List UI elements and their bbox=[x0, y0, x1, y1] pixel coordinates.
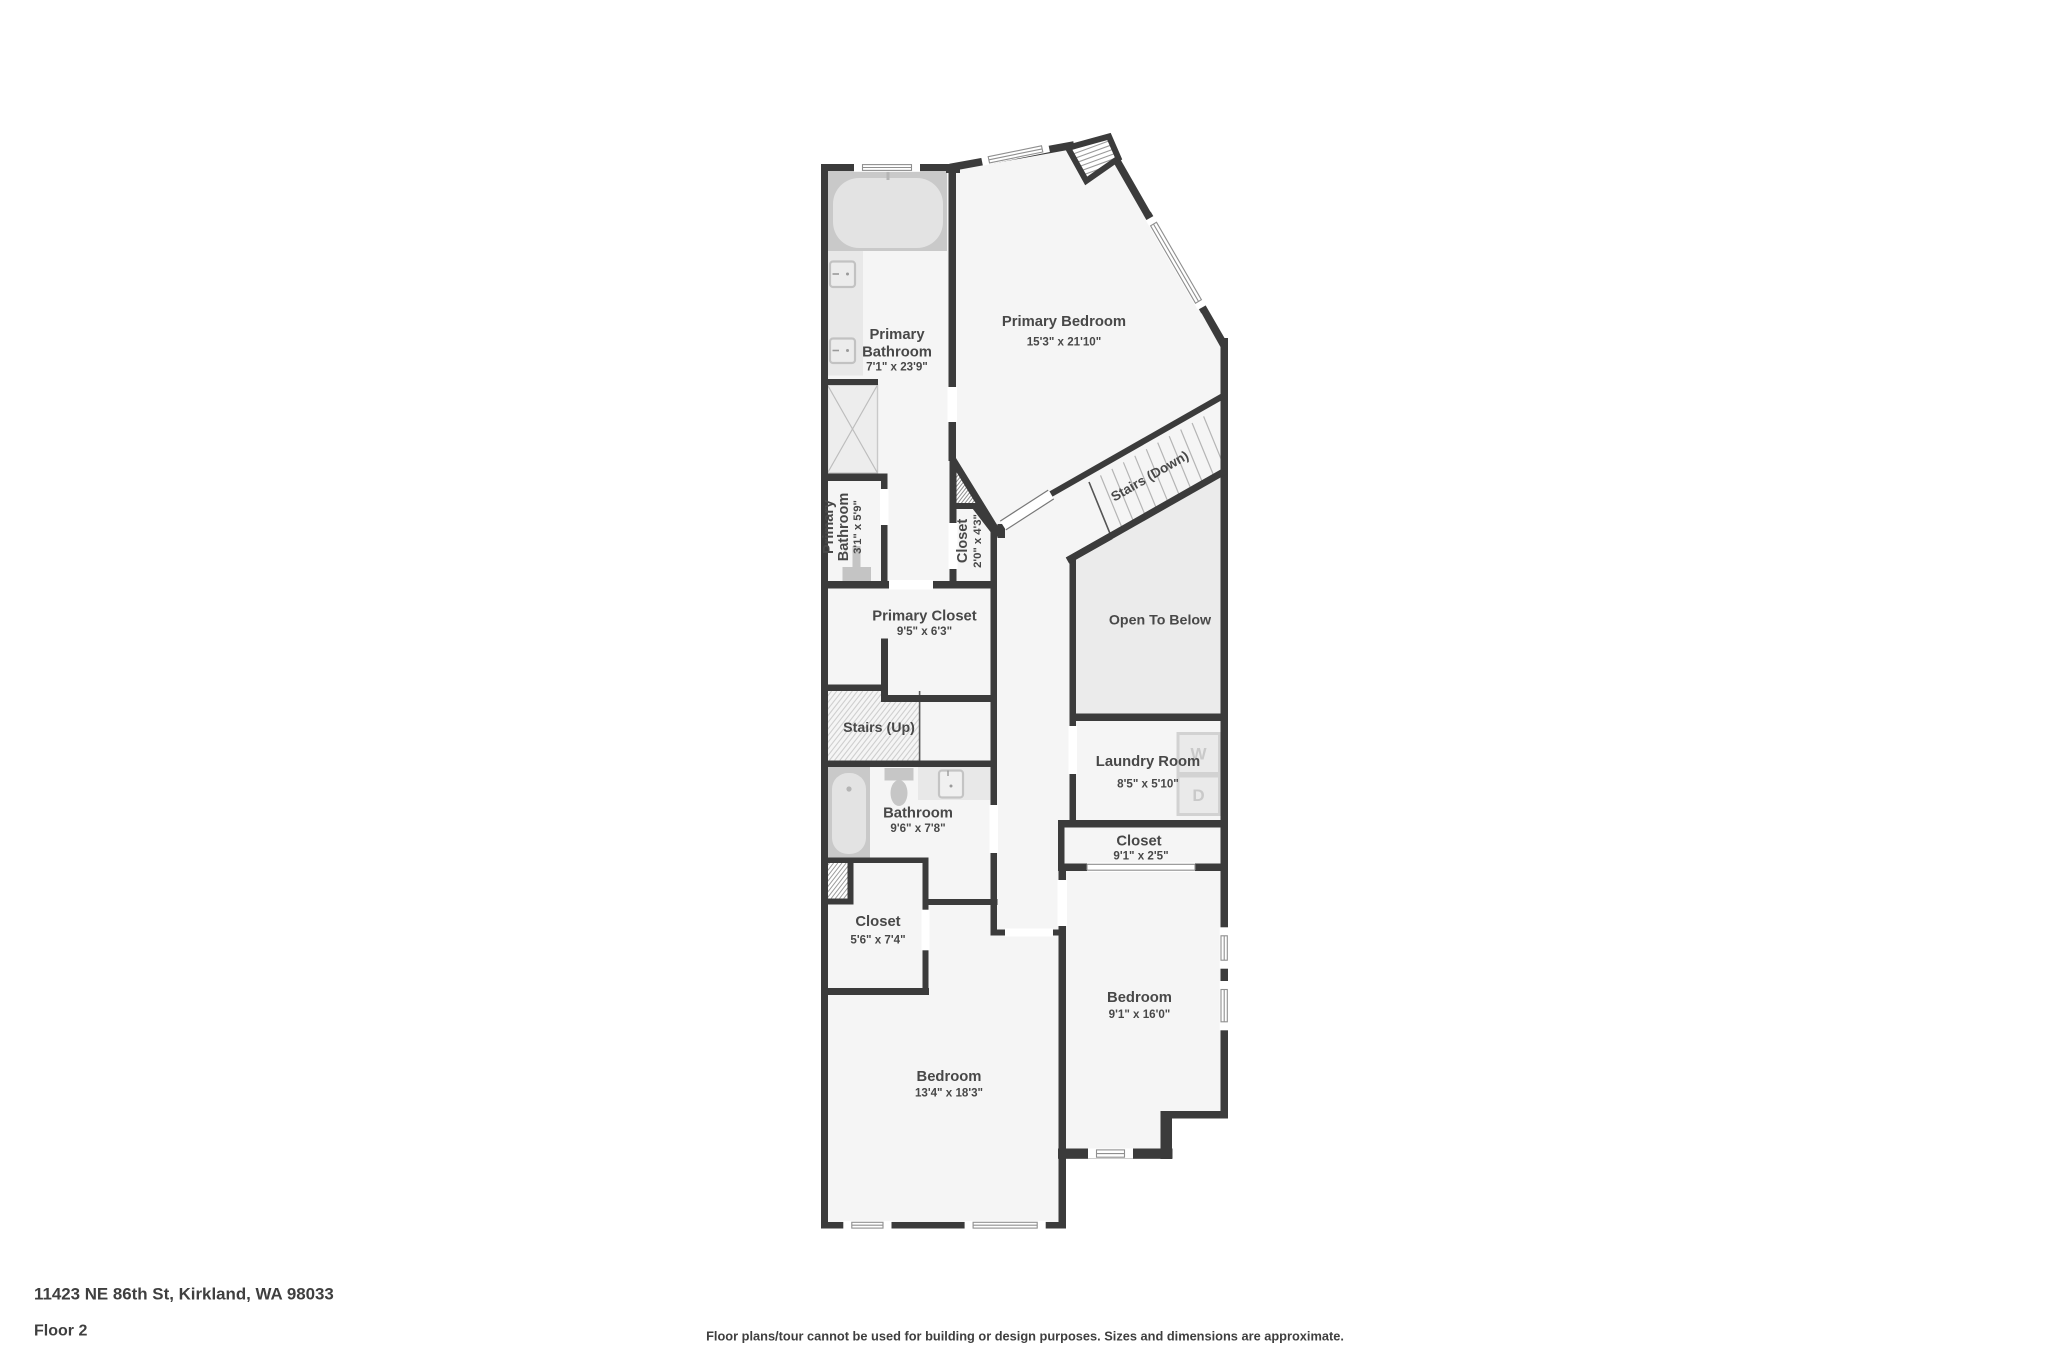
svg-text:Bathroom: Bathroom bbox=[836, 493, 852, 561]
svg-text:9'1" x 2'5": 9'1" x 2'5" bbox=[1113, 850, 1168, 863]
svg-text:Primary: Primary bbox=[821, 500, 837, 554]
svg-text:8'5" x 5'10": 8'5" x 5'10" bbox=[1117, 778, 1179, 791]
svg-text:11423 NE 86th St, Kirkland, WA: 11423 NE 86th St, Kirkland, WA 98033 bbox=[34, 1285, 334, 1304]
svg-text:5'6" x 7'4": 5'6" x 7'4" bbox=[850, 934, 905, 947]
svg-text:Bathroom: Bathroom bbox=[862, 345, 932, 361]
svg-text:D: D bbox=[1192, 786, 1204, 805]
svg-text:Bedroom: Bedroom bbox=[1107, 990, 1172, 1006]
svg-text:9'1" x 16'0": 9'1" x 16'0" bbox=[1109, 1008, 1171, 1021]
svg-text:Primary: Primary bbox=[869, 327, 925, 343]
svg-text:3'1" x 5'9": 3'1" x 5'9" bbox=[852, 500, 864, 554]
svg-text:Bedroom: Bedroom bbox=[917, 1069, 982, 1085]
svg-text:Floor plans/tour cannot be use: Floor plans/tour cannot be used for buil… bbox=[706, 1329, 1344, 1344]
svg-text:Closet: Closet bbox=[855, 914, 900, 930]
svg-text:Bathroom: Bathroom bbox=[883, 806, 953, 822]
svg-text:9'6" x 7'8": 9'6" x 7'8" bbox=[890, 822, 945, 835]
svg-text:2'0" x 4'3": 2'0" x 4'3" bbox=[972, 514, 984, 568]
svg-text:Primary Bedroom: Primary Bedroom bbox=[1002, 314, 1126, 330]
svg-text:Closet: Closet bbox=[955, 519, 971, 563]
svg-text:15'3" x 21'10": 15'3" x 21'10" bbox=[1027, 336, 1102, 349]
svg-text:Primary Closet: Primary Closet bbox=[872, 609, 977, 625]
svg-text:Stairs (Up): Stairs (Up) bbox=[843, 720, 915, 736]
svg-text:7'1" x 23'9": 7'1" x 23'9" bbox=[866, 361, 928, 374]
svg-text:13'4" x 18'3": 13'4" x 18'3" bbox=[915, 1087, 983, 1100]
svg-text:Open To Below: Open To Below bbox=[1109, 613, 1212, 629]
svg-text:Laundry Room: Laundry Room bbox=[1096, 754, 1200, 770]
svg-text:Closet: Closet bbox=[1116, 834, 1161, 850]
svg-text:Floor 2: Floor 2 bbox=[34, 1323, 87, 1340]
svg-text:9'5" x 6'3": 9'5" x 6'3" bbox=[897, 625, 952, 638]
